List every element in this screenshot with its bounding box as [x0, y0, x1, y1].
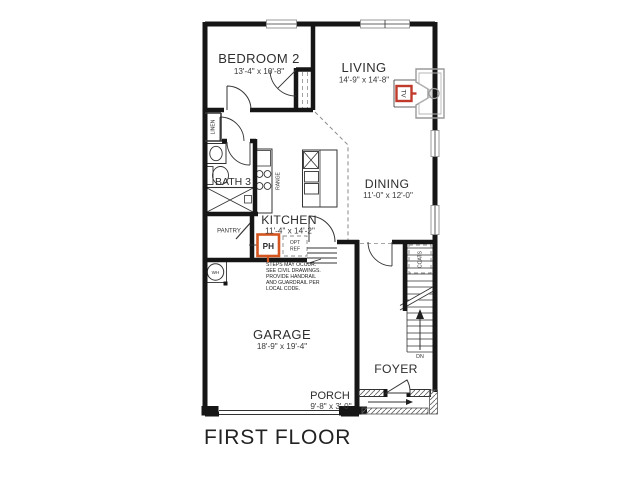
- sink-bowl: [210, 146, 222, 160]
- burner-4: [264, 183, 271, 190]
- foyer-label: FOYER: [374, 362, 417, 376]
- garage-post-dot: [224, 282, 228, 286]
- small-labels: LINEN RANGE PANTRY COATS WH DN OPT REF: [211, 119, 424, 360]
- linen-door: [220, 117, 244, 141]
- wh-label: WH: [212, 270, 220, 275]
- range-label: RANGE: [276, 171, 282, 189]
- bath-door: [227, 142, 250, 165]
- pantry-label: PANTRY: [217, 229, 241, 235]
- kitchen-dims: 11'-4" x 14'-2": [265, 227, 315, 236]
- bedroom2-label: BEDROOM 2: [218, 51, 300, 66]
- upper-cabinet: [256, 151, 271, 167]
- front-door: [386, 380, 410, 393]
- foyer-sill-left: [359, 390, 386, 397]
- tv-label: TV: [400, 89, 407, 98]
- walls: [202, 22, 438, 416]
- dn-label: DN: [416, 354, 424, 360]
- entry-steps: [307, 248, 337, 263]
- garage-door-track: [219, 411, 341, 415]
- linen-label: LINEN: [211, 119, 217, 134]
- room-labels: BEDROOM 2 13'-4" x 10'-8" LIVING 14'-9" …: [215, 51, 418, 411]
- garage-dims: 18'-9" x 19'-4": [257, 342, 307, 351]
- ph-label: PH: [263, 242, 274, 251]
- burner-2: [264, 171, 271, 178]
- porch-label: PORCH: [310, 390, 350, 402]
- porch-step-hatch: [362, 408, 428, 414]
- closet-rod-dash: [303, 72, 308, 108]
- garage-pilaster-left: [202, 406, 219, 416]
- coats-door: [368, 242, 392, 266]
- porch-arrow-head: [406, 399, 413, 405]
- floor-plan-svg: TV PH BEDROOM 2 13'-4" x 10'-8" LIVING 1…: [0, 0, 640, 480]
- ref-label: REF: [290, 247, 300, 253]
- dishwasher-drawer-1: [305, 172, 319, 183]
- floor-plan-image: TV PH BEDROOM 2 13'-4" x 10'-8" LIVING 1…: [0, 0, 640, 480]
- dishwasher-drawer-2: [305, 184, 319, 195]
- tub-cross: [206, 188, 254, 213]
- note-line-5: LOCAL CODE.: [266, 286, 300, 292]
- porch-dims: 9'-8" x 3'-0": [310, 402, 351, 411]
- dining-dims: 11'-0" x 12'-0": [363, 191, 413, 200]
- bedroom2-dims: 13'-4" x 10'-8": [234, 67, 284, 76]
- garage-label: GARAGE: [253, 327, 311, 342]
- living-dims: 14'-9" x 14'-8": [339, 76, 389, 85]
- porch-pier-hatch: [430, 390, 438, 414]
- kitchen-label: KITCHEN: [261, 213, 317, 227]
- tub-faucet: [245, 196, 252, 204]
- fireplace-inner: [419, 73, 441, 114]
- dining-label: DINING: [365, 177, 409, 191]
- coats-label: COATS: [418, 250, 424, 268]
- steps-note: STEPS MAY OCCUR. SEE CIVIL DRAWINGS. PRO…: [266, 259, 321, 292]
- foyer-sill-right: [410, 390, 431, 397]
- bath3-label: BATH 3: [215, 176, 251, 188]
- island-sink-cross: [304, 152, 319, 169]
- opt-label: OPT: [290, 240, 300, 246]
- stair-arrow-head: [416, 309, 424, 319]
- doors: [220, 70, 413, 405]
- plan-title: FIRST FLOOR: [204, 426, 351, 449]
- fireplace-outer: [416, 69, 444, 118]
- living-label: LIVING: [341, 60, 386, 75]
- bedroom-door: [227, 86, 251, 110]
